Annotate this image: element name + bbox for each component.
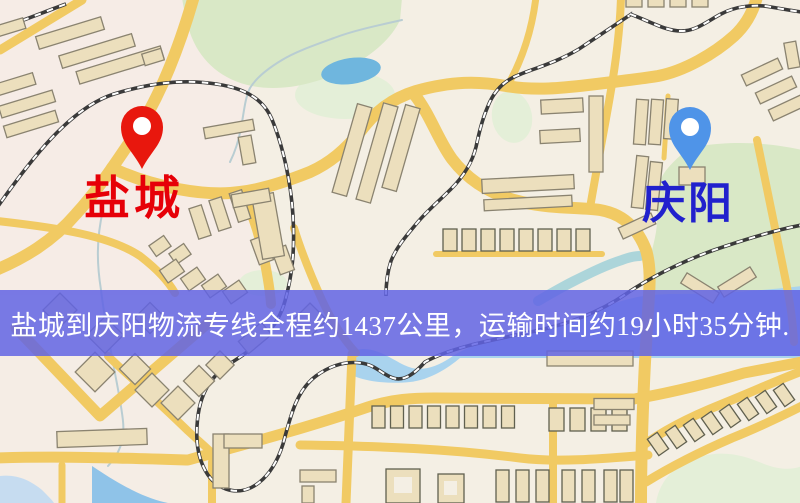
route-info-banner: 盐城到庆阳物流专线全程约1437公里，运输时间约19小时35分钟. bbox=[0, 290, 800, 356]
destination-city-label: 庆阳 bbox=[642, 182, 734, 226]
map-canvas[interactable] bbox=[0, 0, 800, 503]
origin-city-label: 盐城 bbox=[84, 176, 184, 222]
logistics-route-map: 盐城 庆阳 盐城到庆阳物流专线全程约1437公里，运输时间约19小时35分钟. bbox=[0, 0, 800, 503]
route-info-text: 盐城到庆阳物流专线全程约1437公里，运输时间约19小时35分钟. bbox=[10, 304, 789, 343]
park-small-center bbox=[488, 88, 536, 146]
